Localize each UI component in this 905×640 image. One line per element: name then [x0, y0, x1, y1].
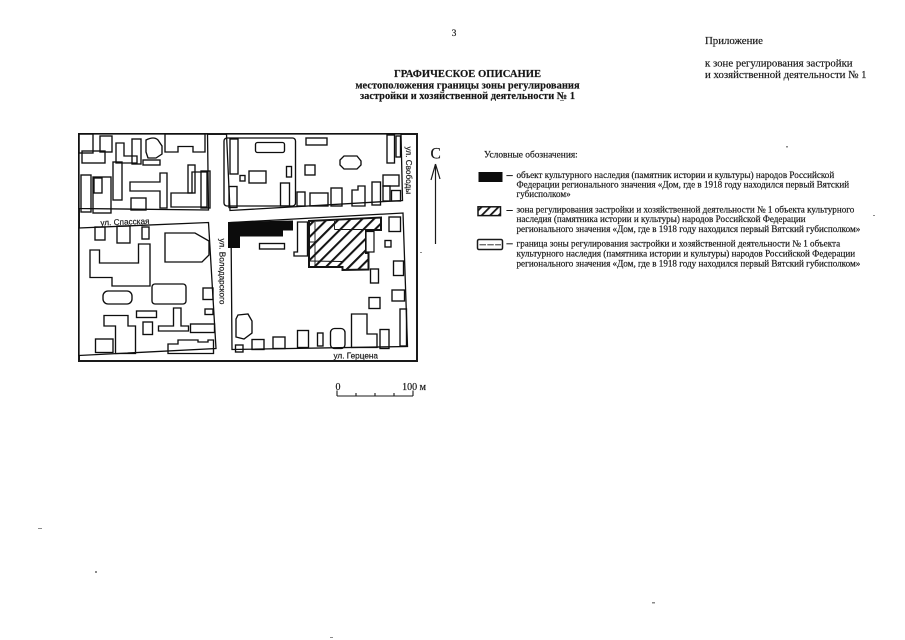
svg-text:ул. Володарского: ул. Володарского: [218, 239, 227, 305]
svg-text:3: 3: [452, 29, 457, 39]
svg-text:губисполком»: губисполком»: [517, 189, 572, 199]
svg-text:наследия (памятника истории и: наследия (памятника истории и культуры) …: [517, 214, 806, 224]
svg-text:зона регулирования застройки и: зона регулирования застройки и хозяйстве…: [517, 205, 855, 215]
svg-text:ул. Герцена: ул. Герцена: [334, 352, 379, 361]
svg-text:регионального значения «Дом, г: регионального значения «Дом, где в 1918 …: [517, 259, 861, 269]
svg-text:застройки и хозяйственной деят: застройки и хозяйственной деятельности №…: [360, 91, 575, 102]
svg-text:ул. Свободы: ул. Свободы: [404, 147, 413, 195]
svg-text:регионального значения «Дом, г: регионального значения «Дом, где в 1918 …: [517, 224, 861, 234]
svg-text:и хозяйственной деятельности №: и хозяйственной деятельности № 1: [705, 69, 867, 81]
svg-text:граница зоны регулирования зас: граница зоны регулирования застройки и х…: [517, 238, 841, 248]
svg-text:ул. Спасская: ул. Спасская: [100, 217, 149, 228]
svg-text:0: 0: [336, 382, 341, 393]
svg-text:Условные обозначения:: Условные обозначения:: [484, 149, 578, 160]
svg-text:ГРАФИЧЕСКОЕ ОПИСАНИЕ: ГРАФИЧЕСКОЕ ОПИСАНИЕ: [394, 69, 541, 80]
svg-text:С: С: [431, 146, 441, 163]
svg-text:100 м: 100 м: [402, 382, 427, 393]
svg-text:к зоне регулирования застройки: к зоне регулирования застройки: [705, 58, 853, 70]
svg-text:Приложение: Приложение: [705, 35, 763, 47]
svg-text:объект культурного наследия (п: объект культурного наследия (памятник ис…: [517, 170, 835, 180]
svg-text:местоположения границы зоны ре: местоположения границы зоны регулировани…: [355, 80, 580, 91]
svg-text:культурного наследия (памятник: культурного наследия (памятника истории …: [517, 249, 856, 259]
